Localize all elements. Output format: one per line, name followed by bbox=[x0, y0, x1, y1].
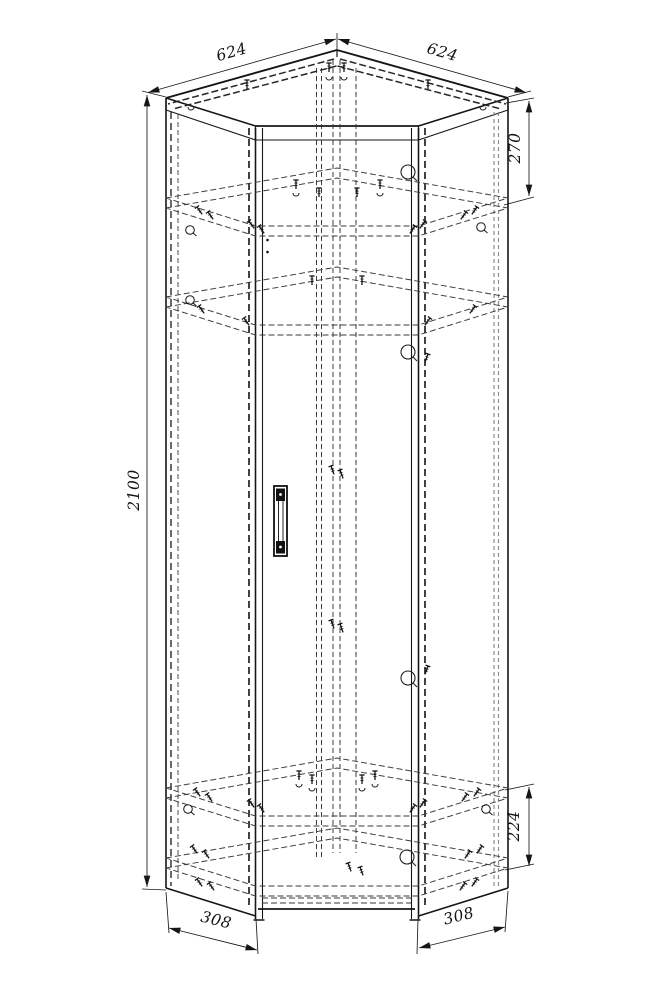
screw-icon bbox=[354, 188, 359, 197]
door-handle bbox=[274, 486, 287, 556]
screw-icon bbox=[244, 80, 249, 89]
dowel-hook-icon bbox=[296, 784, 302, 787]
hole-mark bbox=[401, 345, 415, 359]
screw-icon bbox=[309, 775, 314, 784]
screw-icon bbox=[468, 305, 477, 315]
dowel-hook-icon bbox=[326, 77, 332, 80]
screw-icon bbox=[346, 862, 354, 872]
dowel-hook-icon bbox=[341, 77, 347, 80]
dimensions: 624 624 2100 270 224 308 308 bbox=[125, 33, 534, 954]
screw-icon bbox=[470, 206, 479, 216]
drawing-canvas: 624 624 2100 270 224 308 308 bbox=[0, 0, 667, 1000]
dowel-hook-icon bbox=[359, 788, 365, 791]
screw-icon bbox=[359, 276, 364, 285]
dowel-hook-icon bbox=[480, 107, 486, 110]
screw-icon bbox=[408, 804, 417, 814]
dowel-hook-icon bbox=[309, 788, 315, 791]
extension-lines bbox=[142, 33, 534, 954]
screw-icon bbox=[338, 623, 346, 633]
dim-label-bottom-left: 308 bbox=[199, 908, 234, 933]
dim-label-right-lower: 224 bbox=[505, 810, 523, 842]
dimension-lines bbox=[147, 39, 529, 950]
shelf-bottom bbox=[166, 758, 508, 826]
dim-label-top-right: 624 bbox=[425, 39, 460, 65]
screw-icon bbox=[358, 866, 366, 876]
screw-icon bbox=[423, 317, 432, 327]
dowel-hook-icon bbox=[293, 193, 299, 196]
screw-icon bbox=[470, 878, 479, 888]
shelves bbox=[166, 168, 508, 896]
screw-icon bbox=[338, 469, 346, 479]
screw-icon bbox=[359, 775, 364, 784]
screw-icon bbox=[459, 211, 468, 221]
bottom-rail-hidden-edges bbox=[262, 898, 412, 903]
cam-lock-icon bbox=[477, 223, 488, 233]
cam-lock-icon bbox=[186, 226, 197, 236]
hole-marks bbox=[400, 165, 417, 866]
top-panel bbox=[166, 50, 508, 140]
screw-icon bbox=[329, 465, 337, 475]
hole-mark-tick bbox=[412, 862, 416, 866]
screw-icon bbox=[425, 80, 430, 89]
screw-icon bbox=[377, 180, 382, 189]
shelf-top bbox=[166, 168, 508, 236]
hole-mark-tick bbox=[413, 357, 417, 361]
screw-icon bbox=[422, 665, 430, 675]
cam-lock-icon bbox=[482, 805, 493, 815]
hole-mark bbox=[401, 165, 415, 179]
top-panel-front-left-edge bbox=[166, 98, 256, 126]
top-panel-back-right-edge bbox=[337, 50, 508, 98]
screw-icon bbox=[293, 180, 298, 189]
assembly-drawing: 624 624 2100 270 224 308 308 bbox=[0, 0, 667, 1000]
hole-mark bbox=[401, 671, 415, 685]
screw-icon bbox=[372, 771, 377, 780]
screw-icon bbox=[422, 353, 430, 363]
dim-label-right-upper: 270 bbox=[506, 132, 524, 164]
hole-mark-tick bbox=[413, 177, 417, 181]
dim-line-308-right bbox=[419, 927, 505, 948]
screw-icon bbox=[195, 206, 204, 216]
screw-icon bbox=[242, 317, 251, 327]
dowel-hook-icon bbox=[372, 784, 378, 787]
dim-line-308-left bbox=[169, 928, 257, 950]
hinge-screw-dot bbox=[266, 251, 269, 254]
left-side-panel bbox=[166, 98, 256, 916]
screw-icon bbox=[316, 188, 321, 197]
hinge-screw-dot bbox=[266, 239, 269, 242]
dim-label-top-left: 624 bbox=[214, 39, 249, 65]
base-panel bbox=[166, 828, 508, 896]
screw-icon bbox=[296, 771, 301, 780]
screw-icon bbox=[257, 804, 266, 814]
dowel-hook-icon bbox=[188, 107, 194, 110]
right-panel-edge-band-hidden bbox=[494, 112, 499, 886]
shelf-upper bbox=[166, 267, 508, 335]
right-side-panel bbox=[419, 98, 509, 916]
dim-label-height: 2100 bbox=[125, 469, 143, 511]
screw-icon bbox=[207, 882, 216, 892]
cam-lock-icon bbox=[186, 296, 197, 306]
dowel-hook-icon bbox=[377, 193, 383, 196]
screw-icon bbox=[309, 276, 314, 285]
corner-post-hidden bbox=[317, 60, 357, 858]
top-panel-back-left-edge bbox=[166, 50, 337, 98]
hole-mark-tick bbox=[413, 683, 417, 687]
screw-icon bbox=[197, 305, 206, 315]
